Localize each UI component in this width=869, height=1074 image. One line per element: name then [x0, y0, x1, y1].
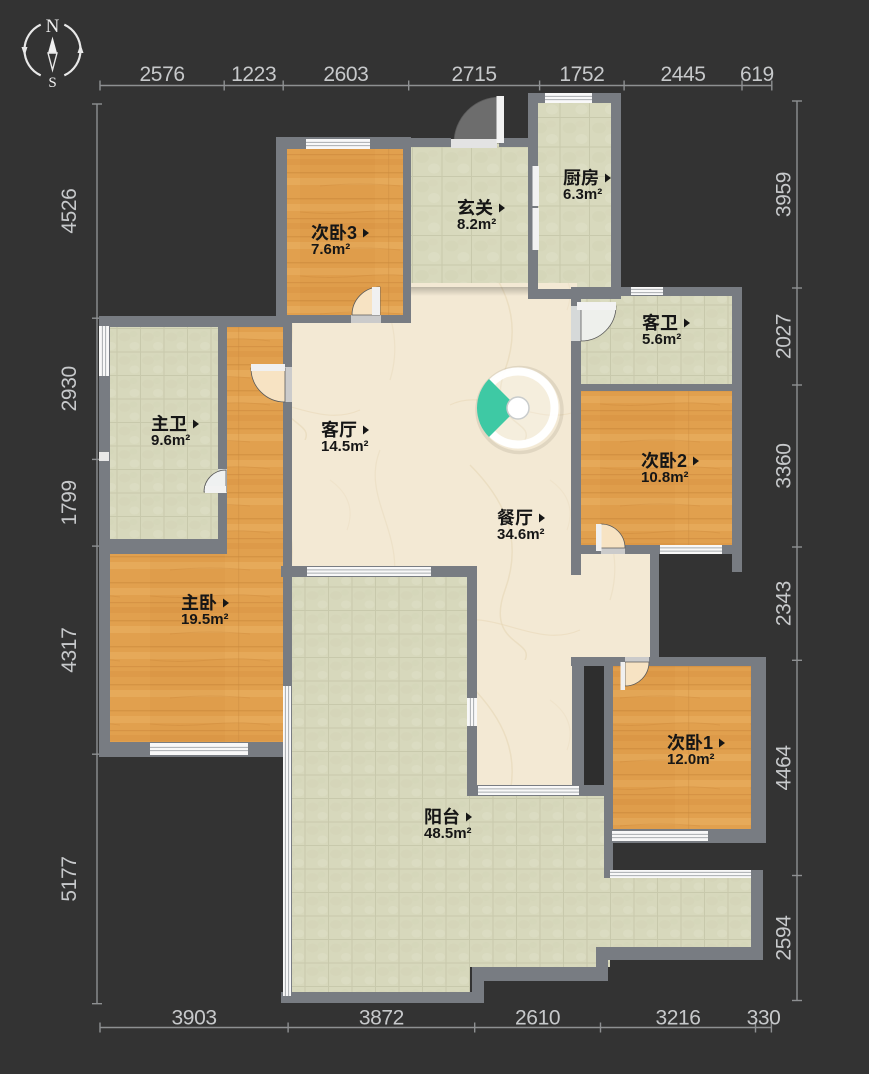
svg-text:34.6m²: 34.6m²: [497, 526, 545, 543]
svg-text:S: S: [48, 75, 56, 91]
svg-text:3360: 3360: [773, 443, 796, 488]
svg-text:5177: 5177: [58, 856, 81, 901]
svg-text:2715: 2715: [452, 63, 497, 86]
svg-text:14.5m²: 14.5m²: [321, 438, 369, 455]
svg-text:2445: 2445: [660, 63, 705, 86]
svg-text:19.5m²: 19.5m²: [181, 611, 229, 628]
svg-text:2: 2: [677, 451, 687, 471]
svg-text:12.0m²: 12.0m²: [667, 751, 715, 768]
svg-text:1223: 1223: [231, 63, 276, 86]
svg-text:619: 619: [740, 63, 774, 86]
svg-text:2610: 2610: [515, 1007, 560, 1030]
svg-text:1: 1: [703, 733, 713, 753]
svg-text:2594: 2594: [773, 915, 796, 961]
svg-text:N: N: [46, 16, 60, 37]
svg-text:8.2m²: 8.2m²: [457, 216, 496, 233]
svg-text:10.8m²: 10.8m²: [641, 469, 689, 486]
svg-text:3872: 3872: [359, 1007, 404, 1030]
svg-text:2576: 2576: [140, 63, 185, 86]
svg-text:1799: 1799: [58, 480, 81, 525]
svg-text:3216: 3216: [655, 1007, 700, 1030]
svg-text:2027: 2027: [773, 314, 796, 359]
svg-text:330: 330: [747, 1007, 781, 1030]
svg-text:3903: 3903: [172, 1007, 217, 1030]
svg-text:4526: 4526: [58, 189, 81, 234]
svg-text:2603: 2603: [323, 63, 368, 86]
svg-text:4464: 4464: [773, 745, 796, 791]
svg-text:3: 3: [347, 223, 357, 243]
svg-text:9.6m²: 9.6m²: [151, 432, 190, 449]
svg-text:6.3m²: 6.3m²: [563, 186, 602, 203]
svg-text:7.6m²: 7.6m²: [311, 241, 350, 258]
svg-text:5.6m²: 5.6m²: [642, 331, 681, 348]
svg-text:2343: 2343: [773, 581, 796, 626]
svg-text:3959: 3959: [773, 172, 796, 217]
svg-text:48.5m²: 48.5m²: [424, 825, 472, 842]
svg-text:4317: 4317: [58, 628, 81, 673]
svg-text:2930: 2930: [58, 366, 81, 411]
svg-text:1752: 1752: [559, 63, 604, 86]
